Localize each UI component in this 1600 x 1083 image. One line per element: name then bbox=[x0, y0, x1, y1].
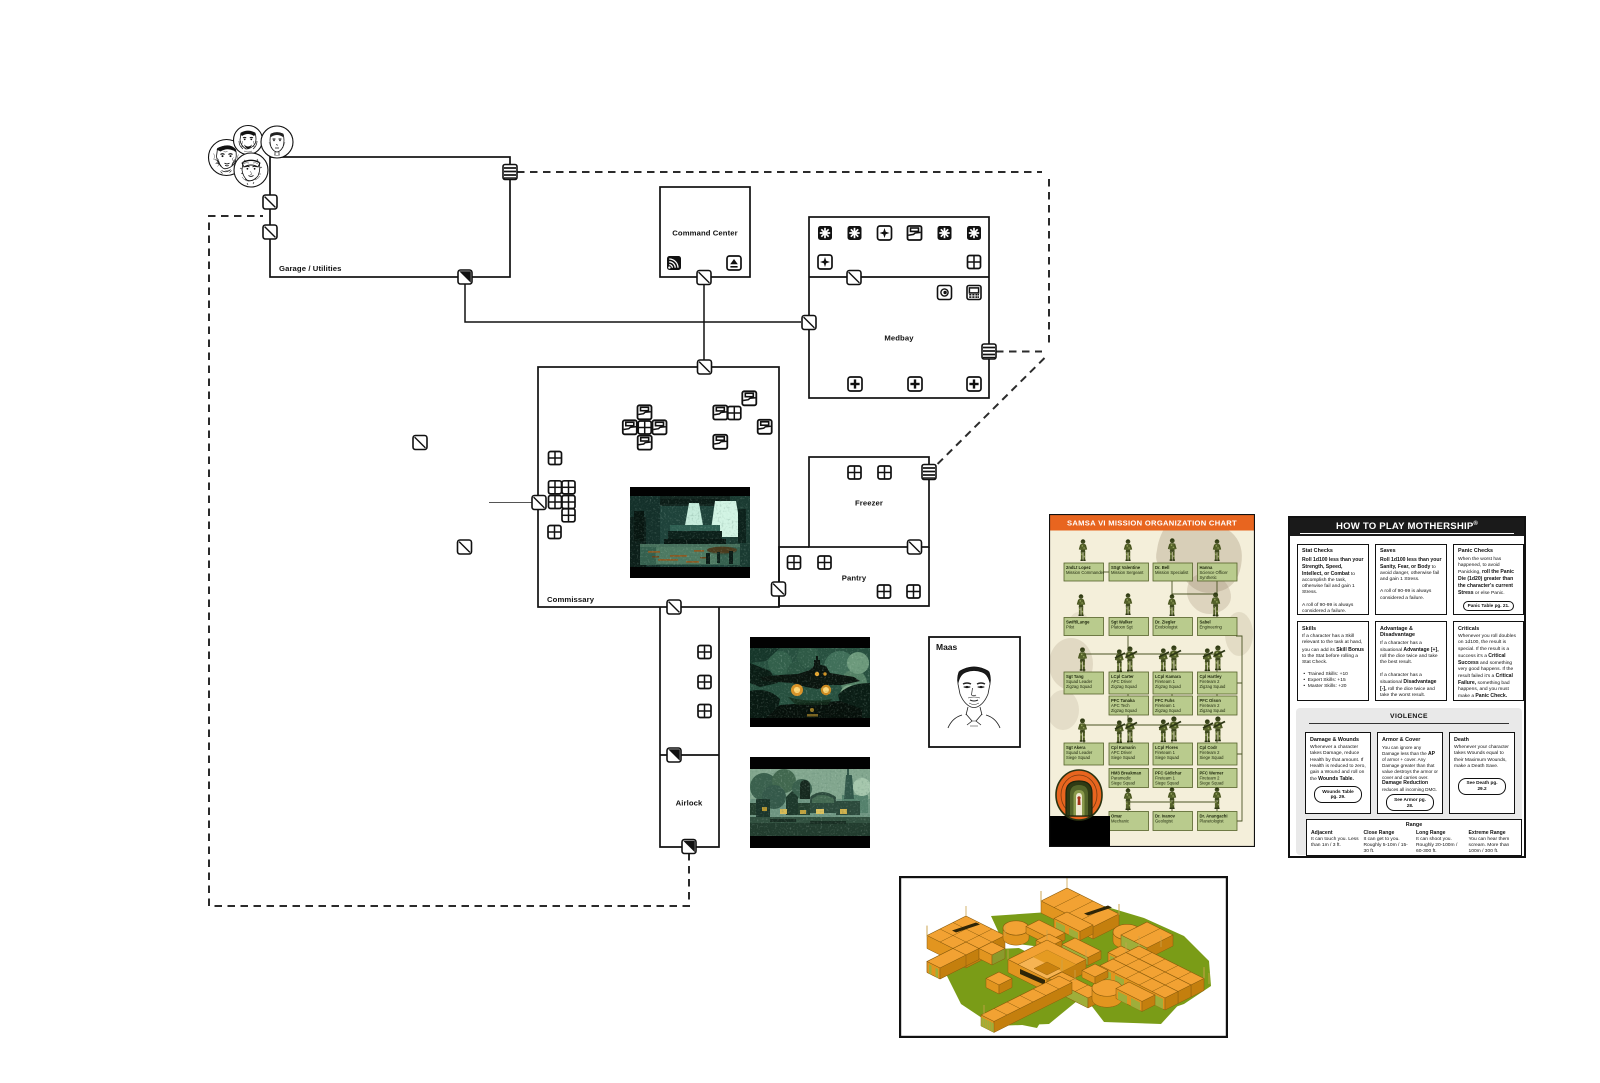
svg-text:SAMSA VI MISSION ORGANIZATION: SAMSA VI MISSION ORGANIZATION CHART bbox=[1067, 519, 1237, 528]
svg-text:Pantry: Pantry bbox=[842, 574, 867, 583]
svg-text:Exobiologist: Exobiologist bbox=[1155, 625, 1178, 630]
svg-text:Siege Squad: Siege Squad bbox=[1155, 755, 1180, 760]
svg-text:Siege Squad: Siege Squad bbox=[1155, 781, 1180, 786]
svg-text:Medbay: Medbay bbox=[884, 334, 914, 343]
svg-text:Zigzag Squad: Zigzag Squad bbox=[1200, 708, 1227, 713]
svg-text:Geologist: Geologist bbox=[1155, 819, 1174, 824]
svg-text:Commissary: Commissary bbox=[547, 595, 595, 604]
svg-text:Siege Squad: Siege Squad bbox=[1111, 755, 1136, 760]
svg-text:Zigzag Squad: Zigzag Squad bbox=[1155, 684, 1182, 689]
svg-text:Mission Commander: Mission Commander bbox=[1066, 570, 1105, 575]
svg-text:Zigzag Squad: Zigzag Squad bbox=[1066, 684, 1093, 689]
svg-text:Freezer: Freezer bbox=[855, 499, 883, 508]
svg-text:Zigzag Squad: Zigzag Squad bbox=[1155, 708, 1182, 713]
svg-text:Garage / Utilities: Garage / Utilities bbox=[279, 264, 341, 273]
svg-text:Maas: Maas bbox=[936, 642, 958, 652]
svg-text:Platoon Sgt: Platoon Sgt bbox=[1111, 625, 1133, 630]
svg-text:Airlock: Airlock bbox=[676, 799, 703, 808]
svg-text:Siege Squad: Siege Squad bbox=[1200, 781, 1225, 786]
svg-text:Engineering: Engineering bbox=[1200, 625, 1223, 630]
svg-text:Pilot: Pilot bbox=[1066, 625, 1075, 630]
svg-text:Mission Specialist: Mission Specialist bbox=[1155, 570, 1189, 575]
svg-text:Siege Squad: Siege Squad bbox=[1066, 755, 1091, 760]
svg-text:Zigzag Squad: Zigzag Squad bbox=[1111, 708, 1138, 713]
svg-text:Zigzag Squad: Zigzag Squad bbox=[1200, 684, 1227, 689]
svg-text:Synthetic: Synthetic bbox=[1200, 575, 1217, 580]
svg-text:Zigzag Squad: Zigzag Squad bbox=[1111, 684, 1138, 689]
svg-text:Siege Squad: Siege Squad bbox=[1200, 755, 1225, 760]
svg-text:Mechanic: Mechanic bbox=[1111, 819, 1129, 824]
svg-text:Siege Squad: Siege Squad bbox=[1111, 781, 1136, 786]
svg-text:Planetologist: Planetologist bbox=[1200, 819, 1225, 824]
svg-text:Mission Sergeant: Mission Sergeant bbox=[1111, 570, 1144, 575]
svg-text:Command Center: Command Center bbox=[672, 229, 737, 238]
